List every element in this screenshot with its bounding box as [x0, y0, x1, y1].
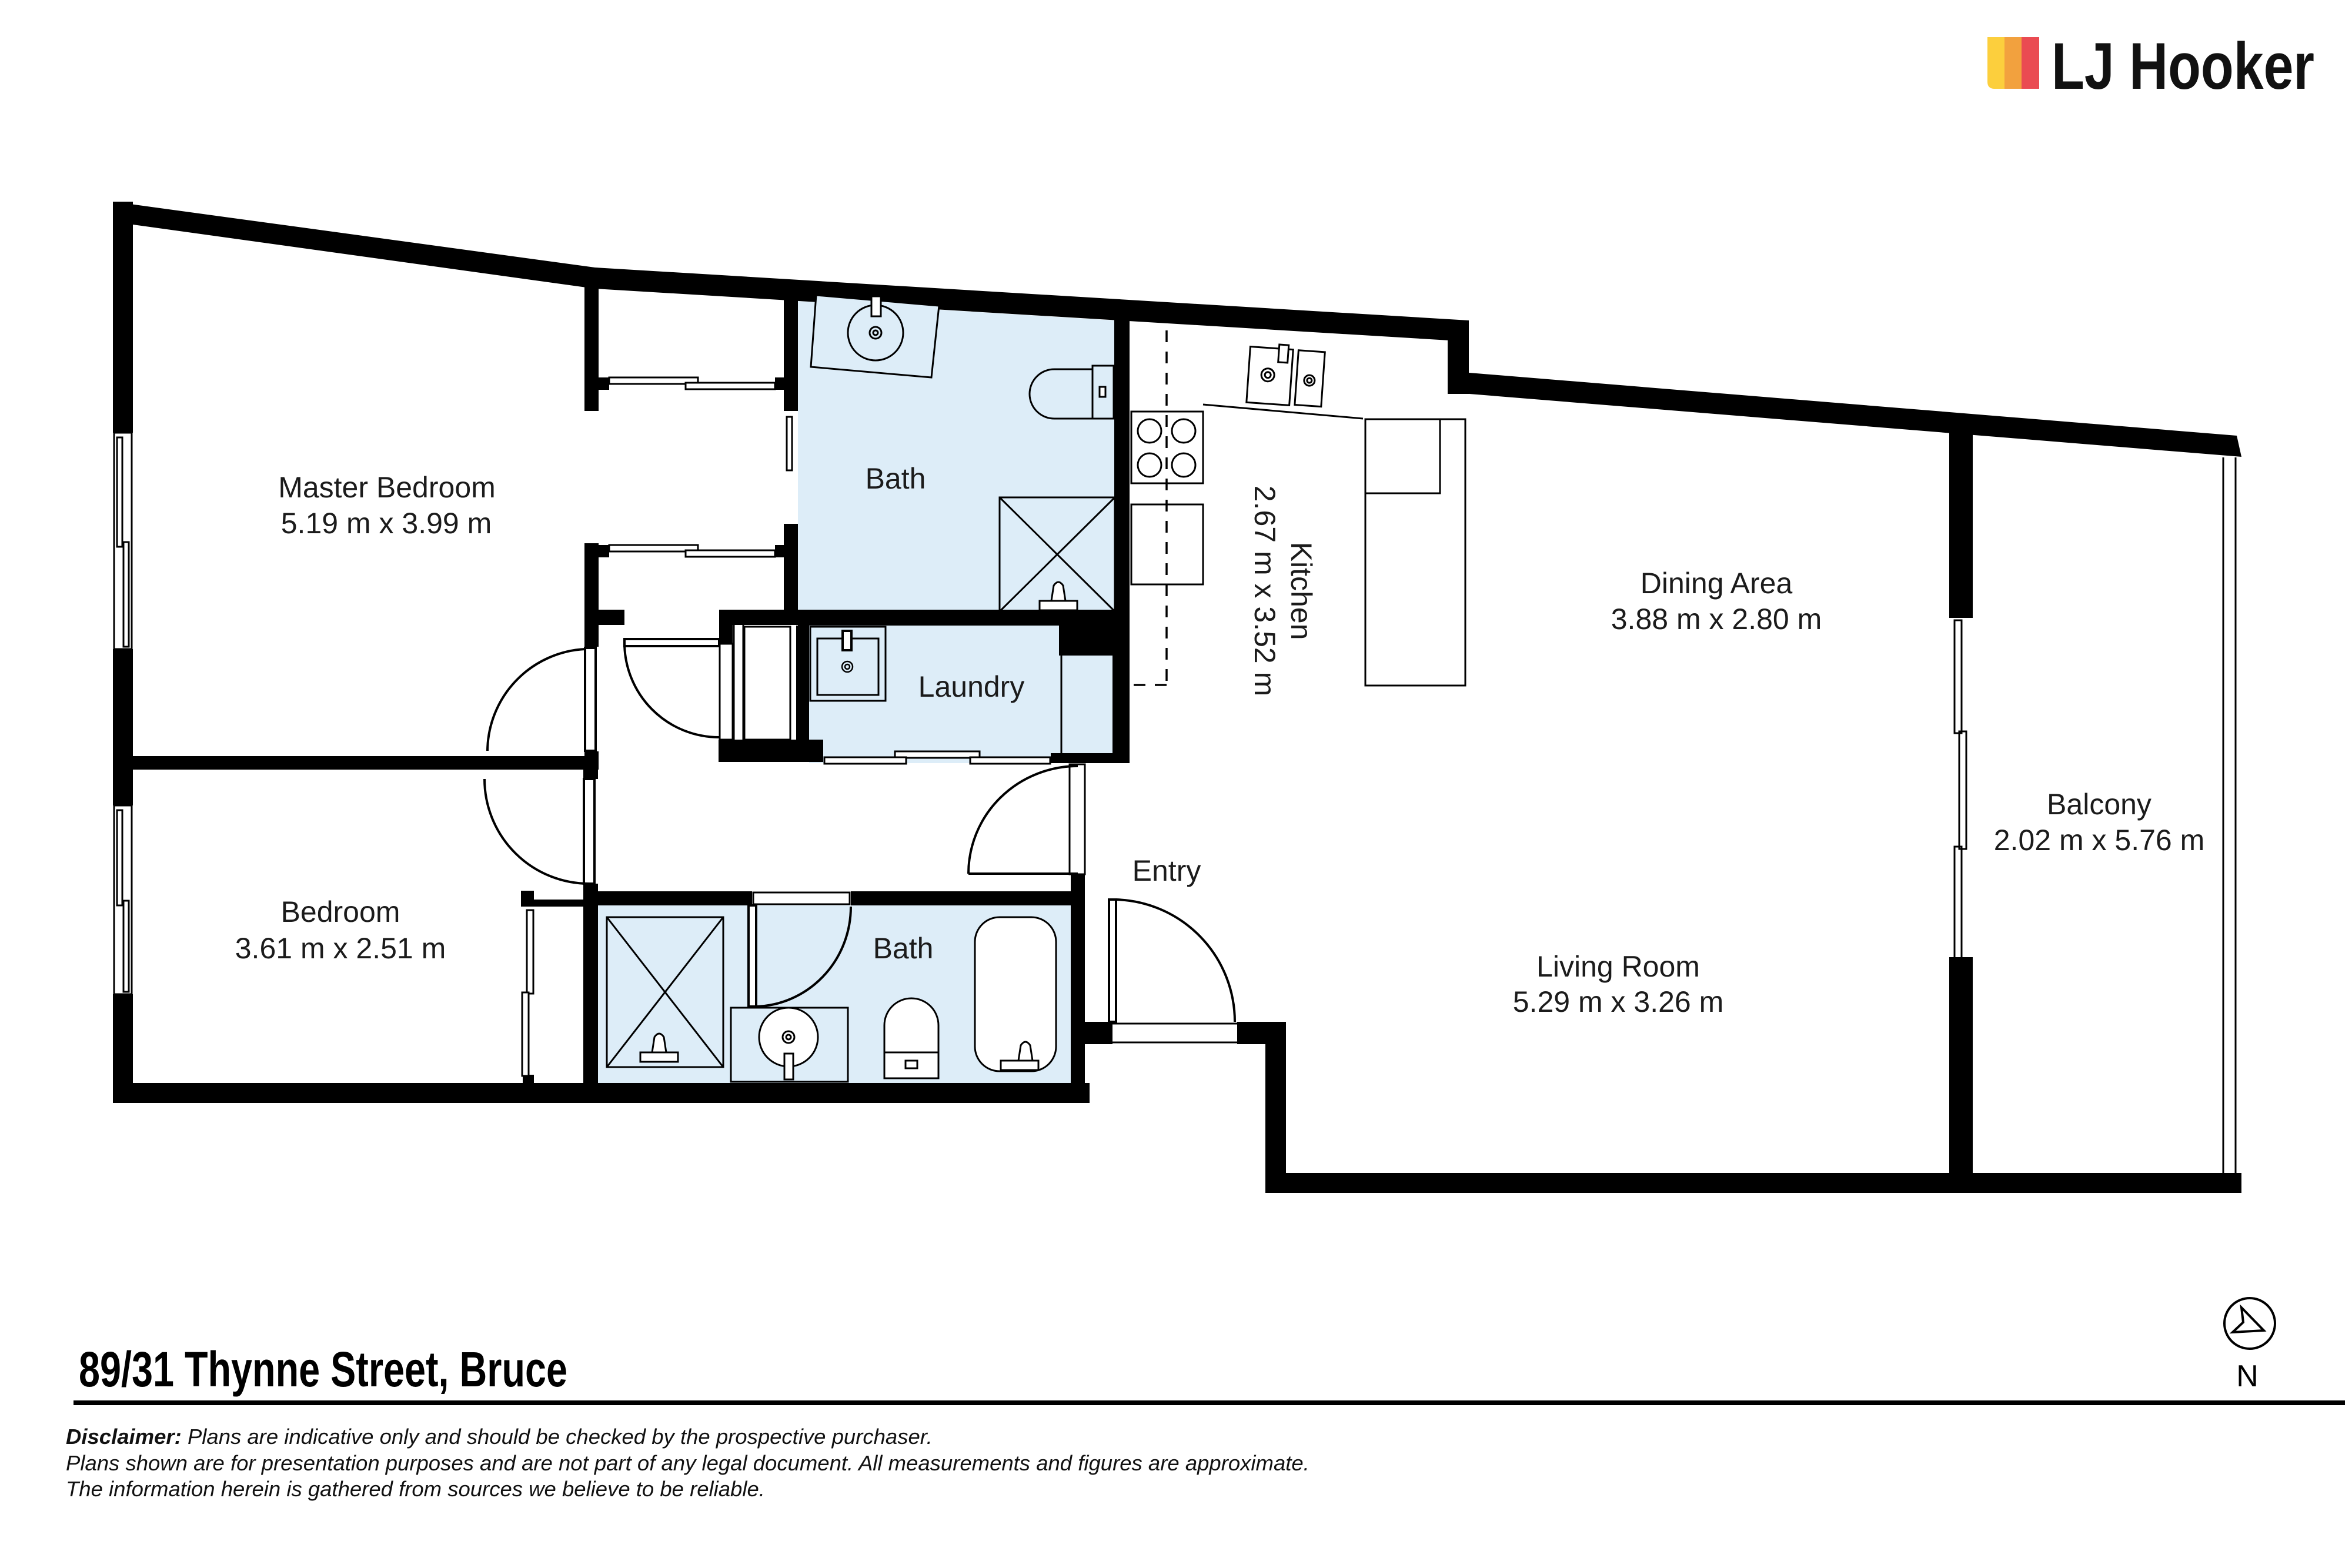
svg-text:N: N	[2236, 1359, 2259, 1393]
svg-text:Balcony: Balcony	[2047, 788, 2151, 821]
svg-text:LJ Hooker: LJ Hooker	[2052, 29, 2314, 103]
svg-text:Bath: Bath	[873, 932, 934, 965]
svg-text:3.61 m x 2.51 m: 3.61 m x 2.51 m	[235, 932, 446, 965]
svg-text:Living Room: Living Room	[1536, 950, 1700, 983]
svg-text:Plans shown are for presentati: Plans shown are for presentation purpose…	[66, 1451, 1309, 1475]
svg-text:5.19 m x 3.99 m: 5.19 m x 3.99 m	[281, 507, 492, 540]
svg-text:Dining Area: Dining Area	[1641, 567, 1793, 600]
svg-text:89/31 Thynne Street, Bruce: 89/31 Thynne Street, Bruce	[79, 1342, 567, 1397]
svg-text:The information herein is gath: The information herein is gathered from …	[66, 1477, 765, 1501]
svg-text:Entry: Entry	[1132, 854, 1201, 887]
svg-text:Master Bedroom: Master Bedroom	[278, 471, 496, 504]
svg-text:Disclaimer: Plans are indicati: Disclaimer: Plans are indicative only an…	[66, 1425, 933, 1449]
svg-text:Laundry: Laundry	[918, 670, 1025, 703]
svg-text:2.67 m x 3.52 m: 2.67 m x 3.52 m	[1248, 486, 1281, 697]
svg-text:5.29 m x 3.26 m: 5.29 m x 3.26 m	[1513, 985, 1724, 1018]
svg-text:Kitchen: Kitchen	[1285, 542, 1318, 640]
svg-text:Bedroom: Bedroom	[281, 895, 400, 928]
svg-text:2.02 m x 5.76 m: 2.02 m x 5.76 m	[1994, 824, 2205, 857]
svg-text:Bath: Bath	[866, 462, 926, 495]
svg-text:3.88 m x 2.80 m: 3.88 m x 2.80 m	[1611, 603, 1822, 636]
